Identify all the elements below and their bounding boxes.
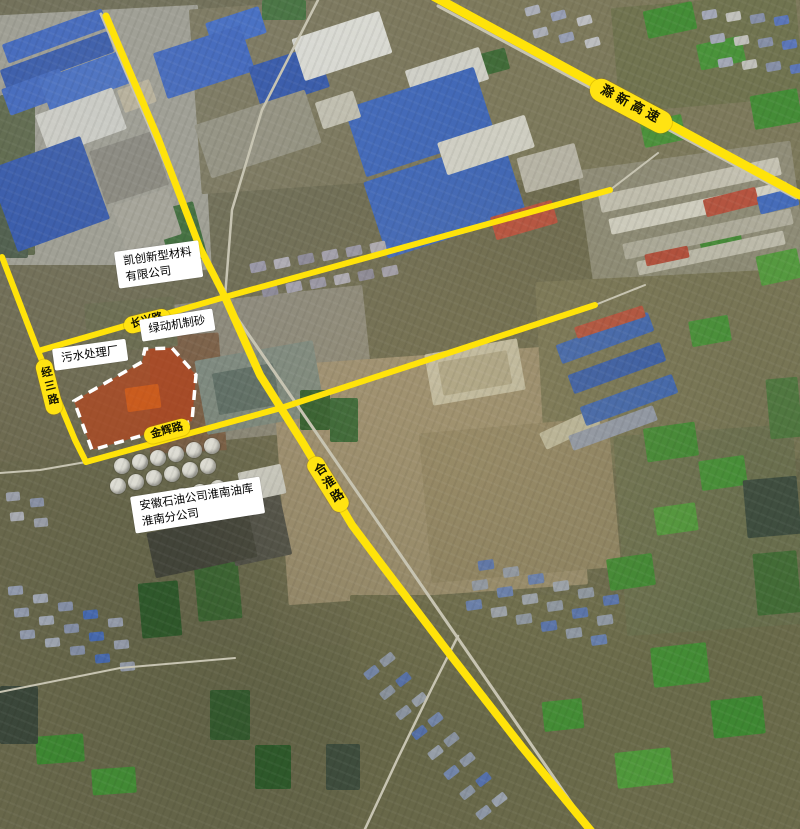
satellite-map: 滁新高速长兴路金辉路经三路合淮路凯创新型材料 有限公司绿动机制砂污水处理厂安徽石… xyxy=(0,0,800,829)
map-label-kaichuang-company: 凯创新型材料 有限公司 xyxy=(114,240,203,289)
road-badge-chuxin-expressway: 滁新高速 xyxy=(586,75,676,138)
road-badge-jinhui-road: 金辉路 xyxy=(142,417,192,445)
road-badge-hehuai-road: 合淮路 xyxy=(304,453,352,514)
map-annotation-layer: 滁新高速长兴路金辉路经三路合淮路凯创新型材料 有限公司绿动机制砂污水处理厂安徽石… xyxy=(0,0,800,829)
map-label-sewage-plant: 污水处理厂 xyxy=(52,339,128,371)
map-label-anhui-oil-depot: 安徽石油公司淮南油库 淮南分公司 xyxy=(130,477,265,534)
